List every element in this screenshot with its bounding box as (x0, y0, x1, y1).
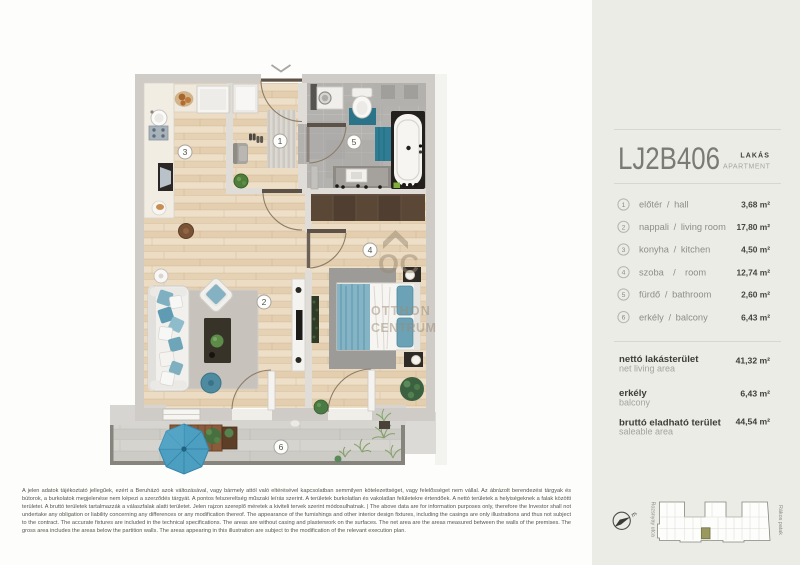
svg-text:4: 4 (368, 245, 373, 255)
svg-text:6: 6 (622, 315, 626, 322)
svg-text:Rozsnyay utca: Rozsnyay utca (650, 502, 656, 537)
svg-text:net living area: net living area (619, 364, 675, 374)
svg-text:CENTRUM: CENTRUM (371, 321, 436, 335)
svg-text:balcony: balcony (619, 398, 651, 408)
svg-text:konyha / kitchen: konyha / kitchen (639, 245, 710, 255)
svg-text:5: 5 (622, 292, 626, 299)
svg-text:nappali / living room: nappali / living room (639, 222, 726, 232)
svg-text:OTTHON: OTTHON (371, 304, 431, 318)
svg-text:6: 6 (279, 442, 284, 452)
svg-text:4,50 m²: 4,50 m² (741, 245, 770, 255)
svg-text:1: 1 (278, 136, 283, 146)
svg-text:szoba / room: szoba / room (639, 267, 706, 277)
svg-text:2,60 m²: 2,60 m² (741, 290, 770, 300)
svg-text:LAKÁS: LAKÁS (740, 151, 770, 160)
svg-text:17,80 m²: 17,80 m² (736, 222, 770, 232)
svg-text:41,32 m²: 41,32 m² (736, 356, 771, 366)
svg-text:saleable area: saleable area (619, 427, 673, 437)
svg-text:előtér / hall: előtér / hall (639, 200, 689, 210)
svg-text:2: 2 (622, 224, 626, 231)
svg-text:Rákos patak: Rákos patak (777, 505, 783, 535)
svg-text:44,54 m²: 44,54 m² (736, 417, 771, 427)
svg-text:3: 3 (622, 247, 626, 254)
svg-text:LJ2B406: LJ2B406 (618, 140, 720, 176)
svg-text:1: 1 (622, 202, 626, 209)
svg-text:6,43 m²: 6,43 m² (740, 389, 770, 399)
svg-text:6,43 m²: 6,43 m² (741, 312, 770, 322)
svg-text:erkély / balcony: erkély / balcony (639, 312, 708, 322)
svg-text:5: 5 (352, 137, 357, 147)
svg-text:3: 3 (183, 147, 188, 157)
svg-text:OC: OC (378, 249, 420, 279)
svg-text:4: 4 (622, 270, 626, 277)
svg-text:12,74 m²: 12,74 m² (736, 267, 770, 277)
svg-text:fürdő / bathroom: fürdő / bathroom (639, 290, 712, 300)
svg-text:3,68 m²: 3,68 m² (741, 200, 770, 210)
svg-text:2: 2 (262, 297, 267, 307)
svg-text:APARTMENT: APARTMENT (723, 164, 771, 171)
